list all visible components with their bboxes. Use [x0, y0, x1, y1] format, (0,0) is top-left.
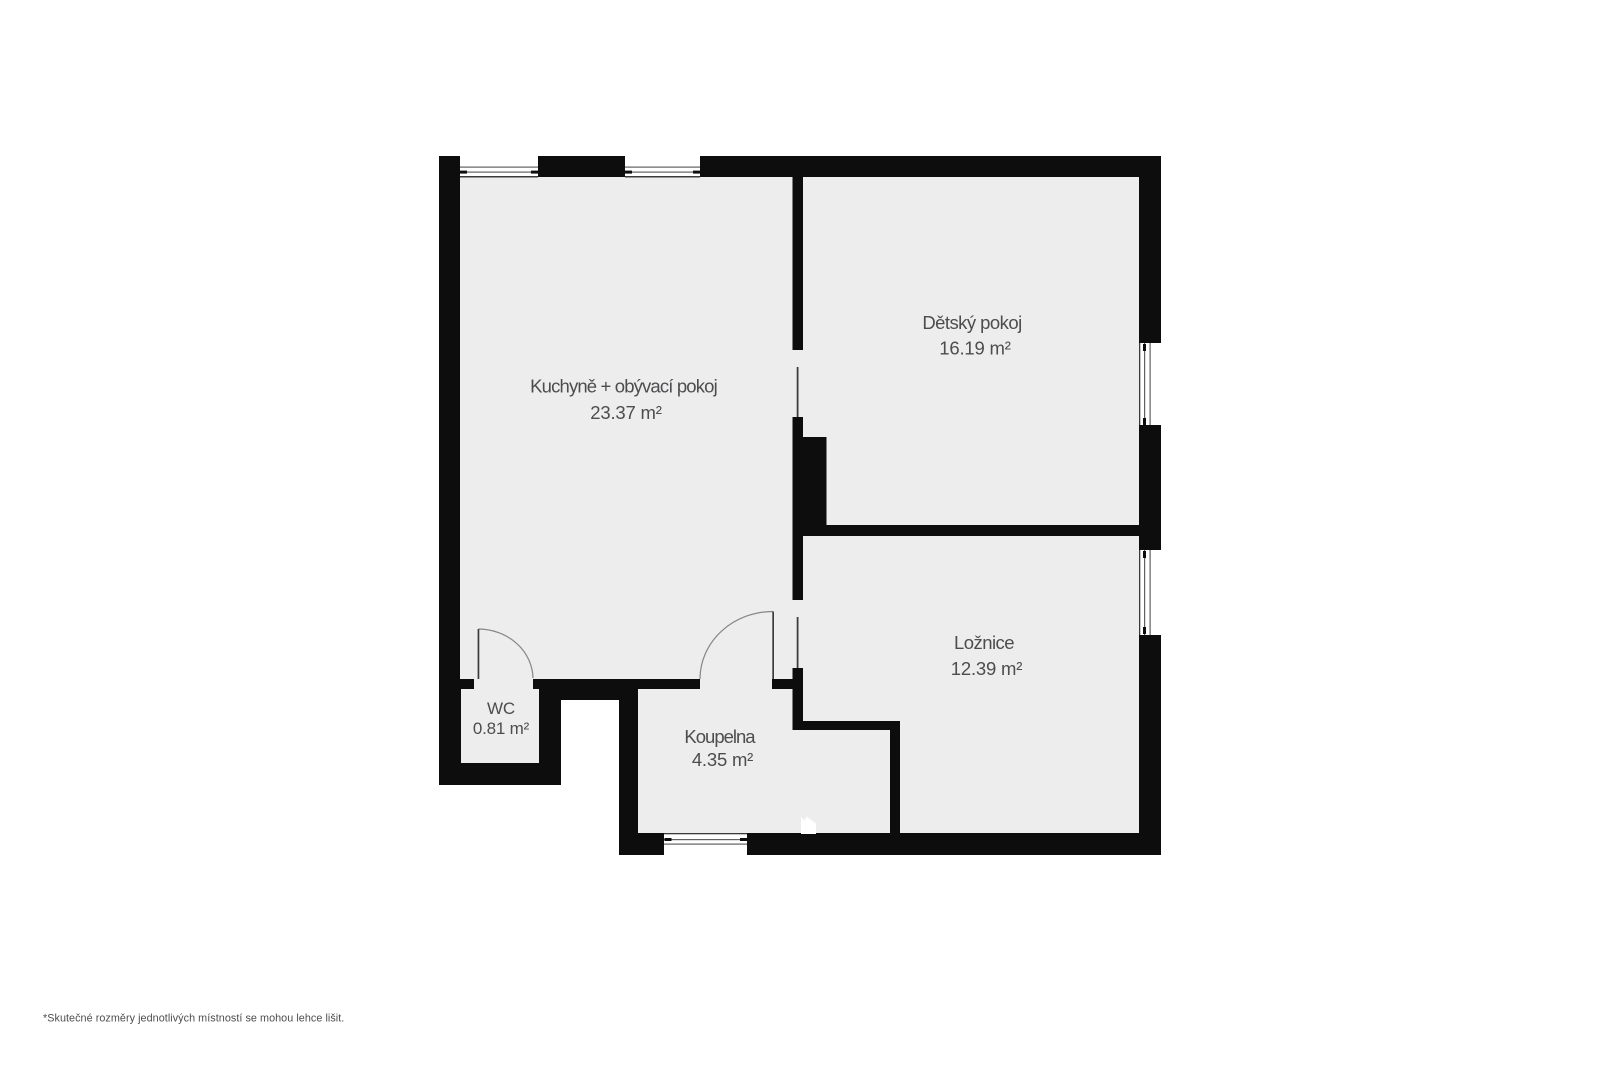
svg-text:0.81 m²: 0.81 m²: [473, 719, 530, 738]
svg-text:WC: WC: [487, 699, 515, 718]
svg-text:23.37 m²: 23.37 m²: [590, 402, 661, 423]
svg-text:12.39 m²: 12.39 m²: [951, 658, 1022, 679]
svg-text:16.19 m²: 16.19 m²: [939, 338, 1010, 359]
svg-text:*Skutečné rozměry jednotlivých: *Skutečné rozměry jednotlivých místností…: [43, 1013, 344, 1025]
svg-text:Koupelna: Koupelna: [684, 726, 756, 747]
svg-text:Dětský pokoj: Dětský pokoj: [922, 312, 1021, 333]
svg-text:Kuchyně + obývací pokoj: Kuchyně + obývací pokoj: [530, 376, 717, 397]
svg-text:4.35 m²: 4.35 m²: [692, 749, 753, 770]
svg-text:Ložnice: Ložnice: [954, 632, 1014, 653]
